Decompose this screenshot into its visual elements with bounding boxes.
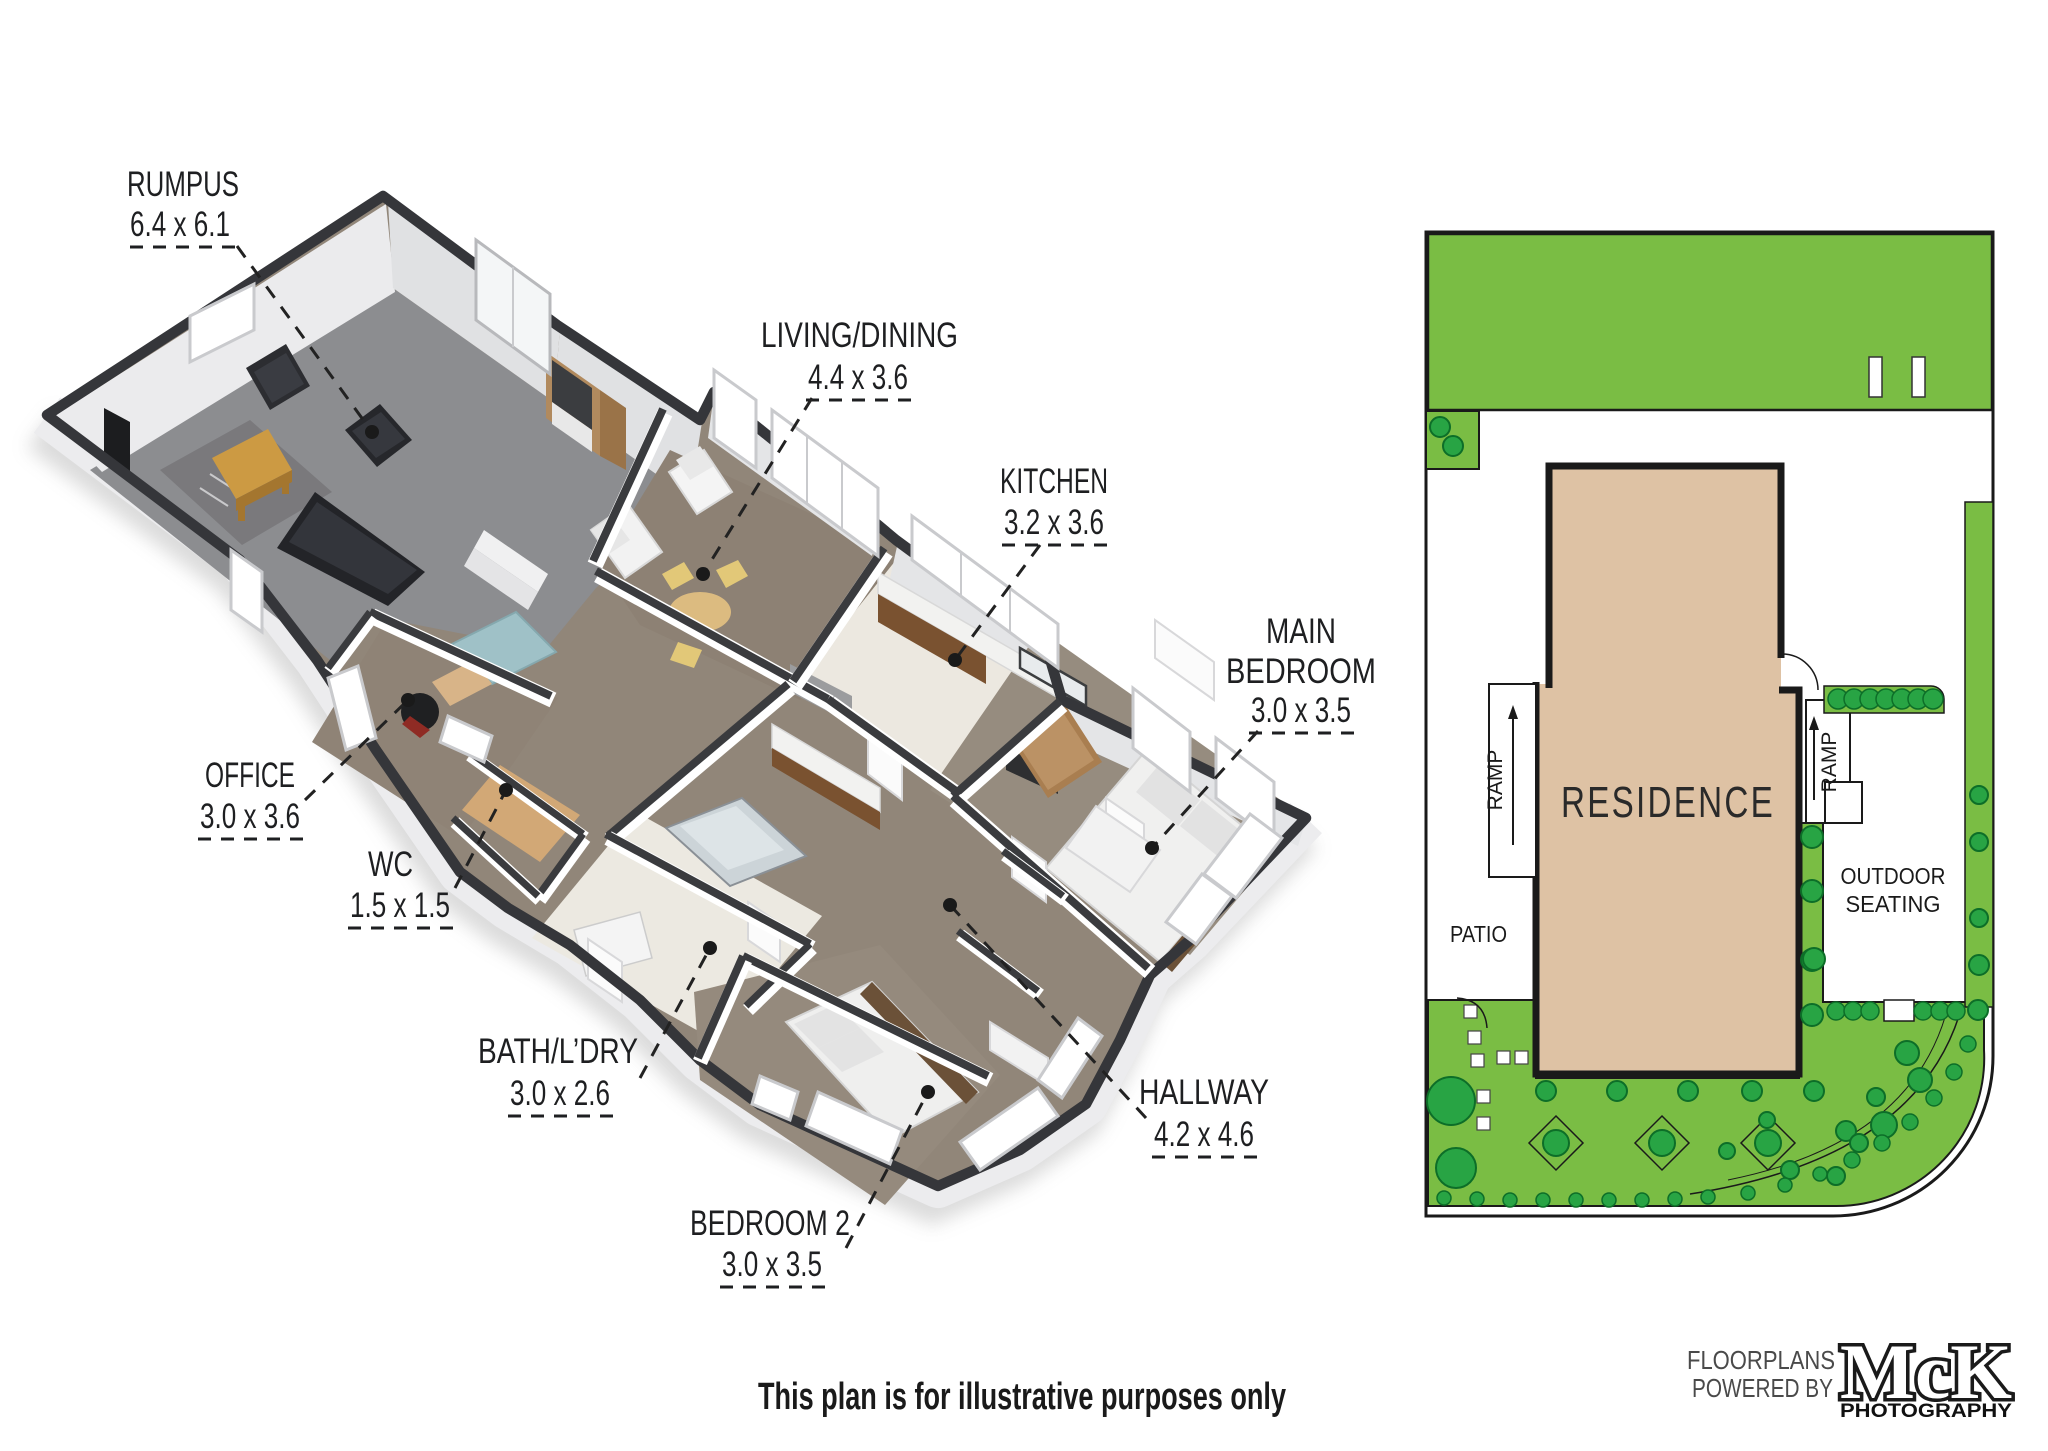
svg-text:MAIN: MAIN [1266, 612, 1336, 651]
svg-text:3.0 x 3.5: 3.0 x 3.5 [1251, 691, 1351, 730]
svg-text:HALLWAY: HALLWAY [1139, 1073, 1269, 1112]
svg-text:3.0 x 3.5: 3.0 x 3.5 [722, 1245, 822, 1284]
svg-text:BATH/L’DRY: BATH/L’DRY [478, 1032, 638, 1071]
svg-text:4.2 x 4.6: 4.2 x 4.6 [1154, 1115, 1254, 1154]
svg-text:RESIDENCE: RESIDENCE [1561, 778, 1775, 827]
svg-text:3.0 x 3.6: 3.0 x 3.6 [200, 797, 300, 836]
svg-text:WC: WC [368, 845, 413, 884]
svg-text:RAMP: RAMP [1484, 750, 1507, 811]
svg-text:SEATING: SEATING [1846, 891, 1941, 917]
svg-text:RAMP: RAMP [1818, 732, 1841, 793]
svg-text:BEDROOM: BEDROOM [1226, 652, 1376, 691]
svg-text:FLOORPLANS: FLOORPLANS [1687, 1345, 1835, 1375]
svg-text:RUMPUS: RUMPUS [127, 165, 239, 204]
svg-text:OFFICE: OFFICE [205, 756, 295, 795]
svg-text:4.4 x 3.6: 4.4 x 3.6 [808, 358, 908, 397]
svg-text:BEDROOM 2: BEDROOM 2 [690, 1204, 850, 1243]
svg-text:This plan is for illustrative: This plan is for illustrative purposes o… [758, 1376, 1286, 1418]
svg-text:1.5 x 1.5: 1.5 x 1.5 [350, 886, 450, 925]
svg-text:3.0 x 2.6: 3.0 x 2.6 [510, 1074, 610, 1113]
svg-text:KITCHEN: KITCHEN [1000, 462, 1108, 501]
svg-text:3.2 x 3.6: 3.2 x 3.6 [1004, 503, 1104, 542]
svg-text:LIVING/DINING: LIVING/DINING [761, 316, 958, 355]
svg-text:OUTDOOR: OUTDOOR [1841, 863, 1946, 889]
svg-text:PHOTOGRAPHY: PHOTOGRAPHY [1840, 1401, 2012, 1422]
svg-text:PATIO: PATIO [1450, 921, 1507, 947]
svg-text:6.4 x 6.1: 6.4 x 6.1 [130, 205, 230, 244]
svg-text:POWERED BY: POWERED BY [1692, 1373, 1833, 1403]
